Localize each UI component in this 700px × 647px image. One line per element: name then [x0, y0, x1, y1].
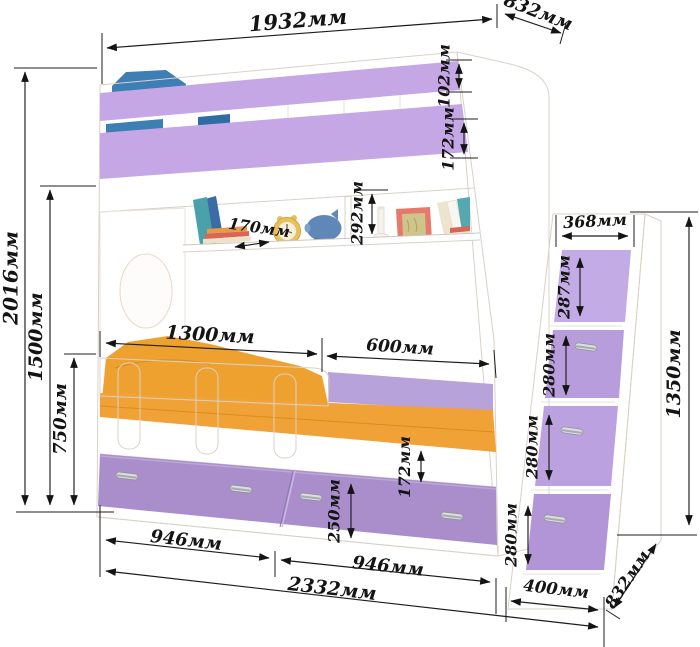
- dim-open-side-length: 600мм: [327, 335, 496, 378]
- headboard-oval-cutout: [120, 254, 172, 328]
- dim-label-left-drawer-width: 946мм: [149, 526, 223, 555]
- dim-upper-bed-height: 1500мм: [25, 186, 96, 505]
- dim-label-right-drawer-width: 946мм: [351, 552, 425, 581]
- dim-label-bottom-depth: 832мм: [600, 547, 653, 613]
- dim-label-stair-top-depth: 368мм: [563, 210, 628, 232]
- dim-label-rail-172: 172мм: [439, 107, 458, 171]
- dim-label-open-side-length: 600мм: [366, 335, 435, 359]
- drawing-canvas: 1932мм 832мм 102мм 172мм 2016мм 1500мм 7…: [0, 0, 700, 647]
- stair-step-3-front: [535, 406, 618, 486]
- dim-label-stair-height: 1350мм: [663, 329, 685, 418]
- dim-label-stair-base-depth: 400мм: [522, 576, 590, 602]
- lower-bunk: [98, 336, 497, 556]
- dim-label-stair-step-4: 280мм: [502, 503, 521, 568]
- bed-side-panel: [457, 52, 549, 556]
- candlestick: [374, 206, 388, 238]
- dim-label-base-total-width: 2332мм: [286, 573, 378, 605]
- dim-stair-step-4: 280мм: [502, 503, 529, 568]
- dim-label-stair-step-2: 280мм: [540, 333, 559, 398]
- dim-bottom-depth: 832мм: [600, 544, 656, 619]
- dim-stair-base-depth: 400мм: [511, 576, 598, 610]
- dim-label-rail-102: 102мм: [435, 44, 454, 108]
- stair-step-4-front: [526, 494, 611, 570]
- dim-label-stair-step-1: 287мм: [555, 255, 574, 320]
- dim-label-top-depth: 832мм: [500, 0, 576, 35]
- dim-label-total-height: 2016мм: [0, 231, 23, 326]
- dim-label-lower-rail-height: 750мм: [50, 383, 71, 455]
- dim-label-guard-rail-length: 1300мм: [165, 322, 255, 349]
- dim-lower-rail-height: 750мм: [50, 354, 96, 505]
- dim-label-upper-bed-height: 1500мм: [25, 292, 47, 381]
- dim-label-under-bed-gap: 172мм: [395, 436, 414, 498]
- dim-label-drawer-height: 250мм: [325, 479, 344, 544]
- bunk-bed-dimension-drawing: 1932мм 832мм 102мм 172мм 2016мм 1500мм 7…: [0, 0, 700, 647]
- dim-label-stair-step-3: 280мм: [523, 415, 542, 480]
- dim-stair-top-depth: 368мм: [556, 210, 634, 247]
- dim-left-drawer-width: 946мм: [106, 526, 269, 558]
- dim-top-depth: 832мм: [500, 0, 576, 44]
- dim-label-shelf-height: 292мм: [348, 181, 367, 246]
